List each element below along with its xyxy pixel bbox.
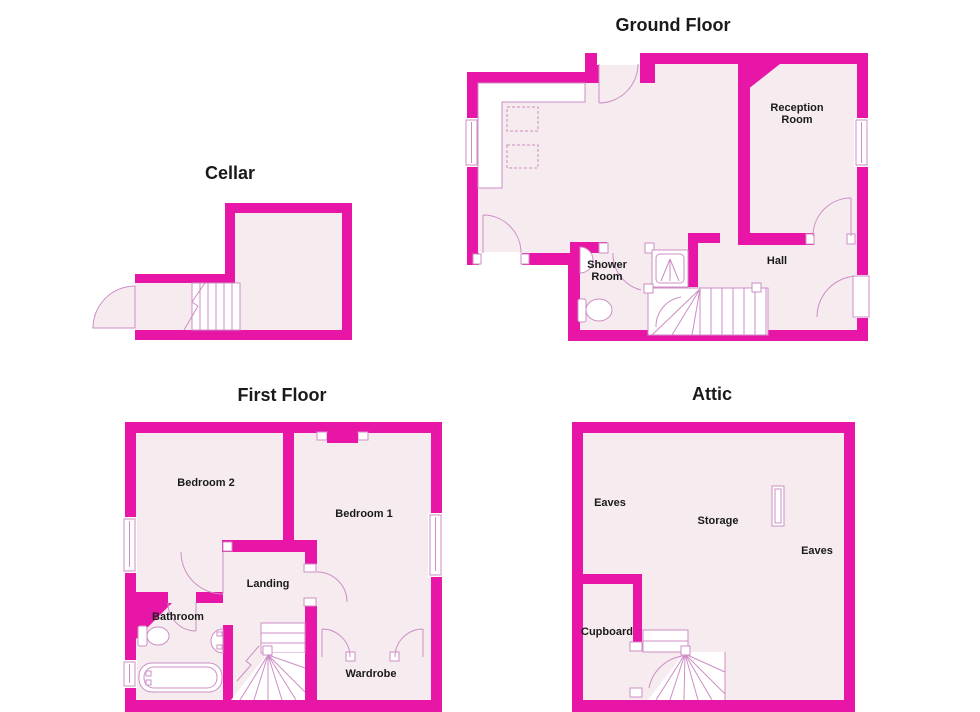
floorplan-drawing: Cellar <box>0 0 980 712</box>
cupboard-jamb-top <box>630 642 642 651</box>
cellar-title: Cellar <box>205 163 255 183</box>
cellar-plan: Cellar <box>93 163 352 340</box>
label-eaves-right: Eaves <box>801 545 833 557</box>
ground-floor-plan: Ground Floor Reception Room Shower Room … <box>464 15 869 341</box>
label-shower-room-line2: Room <box>591 271 622 283</box>
label-eaves-left: Eaves <box>594 497 626 509</box>
label-bedroom1: Bedroom 1 <box>335 508 392 520</box>
shower-cubicle-icon <box>652 250 688 287</box>
label-bathroom: Bathroom <box>152 611 204 623</box>
bathroom-toilet-icon <box>138 626 169 646</box>
shower-toilet-icon <box>578 299 612 322</box>
first-right-window <box>428 513 443 577</box>
first-left-window-bottom <box>122 660 137 688</box>
label-storage: Storage <box>698 515 739 527</box>
attic-plan: Attic Eaves Storage Eaves Cupboard <box>572 384 855 712</box>
ground-floor-title: Ground Floor <box>616 15 731 35</box>
attic-title: Attic <box>692 384 732 404</box>
first-floor-title: First Floor <box>238 385 327 405</box>
label-reception-room-line1: Reception <box>770 102 823 114</box>
cupboard-jamb-bottom <box>630 688 642 697</box>
cellar-door-arc <box>93 286 135 328</box>
floorplan-page: Cellar <box>0 0 980 712</box>
first-left-window-top <box>122 517 137 573</box>
ground-left-window <box>464 118 479 167</box>
label-cupboard: Cupboard <box>581 626 633 638</box>
label-hall: Hall <box>767 255 787 267</box>
label-reception-room-line2: Room <box>781 114 812 126</box>
cellar-stairs-icon <box>184 283 240 330</box>
reception-window <box>854 118 869 167</box>
ground-stairs-icon <box>644 283 768 335</box>
label-shower-room-line1: Shower <box>587 259 627 271</box>
label-landing: Landing <box>247 578 290 590</box>
label-wardrobe: Wardrobe <box>346 668 397 680</box>
skylight-icon <box>772 486 784 526</box>
first-floor-plan: First Floor Bedroom 2 Bedroom 1 Landing … <box>122 385 443 712</box>
label-bedroom2: Bedroom 2 <box>177 477 234 489</box>
bath-tub-icon <box>139 663 222 692</box>
